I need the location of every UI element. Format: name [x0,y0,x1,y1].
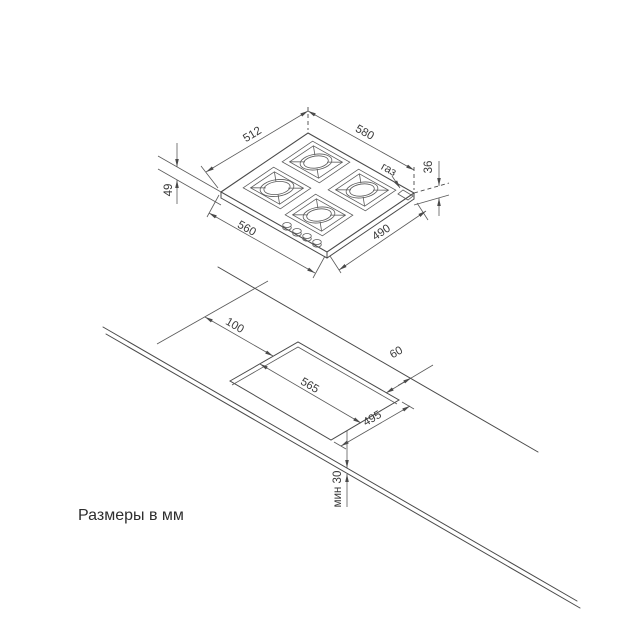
dim-label-60: 60 [388,344,405,361]
worktop-cutout-view: 100 565 60 495 мин 30 [103,267,580,608]
dim-label-580: 580 [353,123,376,143]
dim-label-36: 36 [423,161,435,174]
dim-label-560: 560 [235,219,258,239]
worktop-edges [103,267,580,608]
dimension-495: 495 [334,402,414,449]
dimension-drawing-page: газ 512 580 49 36 [0,0,625,625]
dimension-565: 565 [260,364,361,423]
dimension-36: 36 [414,161,449,216]
dim-label-min-30: мин 30 [332,471,344,508]
dimension-100: 100 [157,281,273,356]
dim-label-490: 490 [370,222,393,243]
units-caption: Размеры в мм [78,507,184,524]
dimension-drawing: газ 512 580 49 36 [0,0,625,625]
dim-label-49: 49 [163,184,175,197]
hob-top-view: газ 512 580 49 36 [158,107,449,278]
dim-label-512: 512 [241,125,264,145]
dimension-49: 49 [158,143,221,205]
dim-label-100: 100 [223,316,246,336]
dim-label-495: 495 [361,409,384,429]
